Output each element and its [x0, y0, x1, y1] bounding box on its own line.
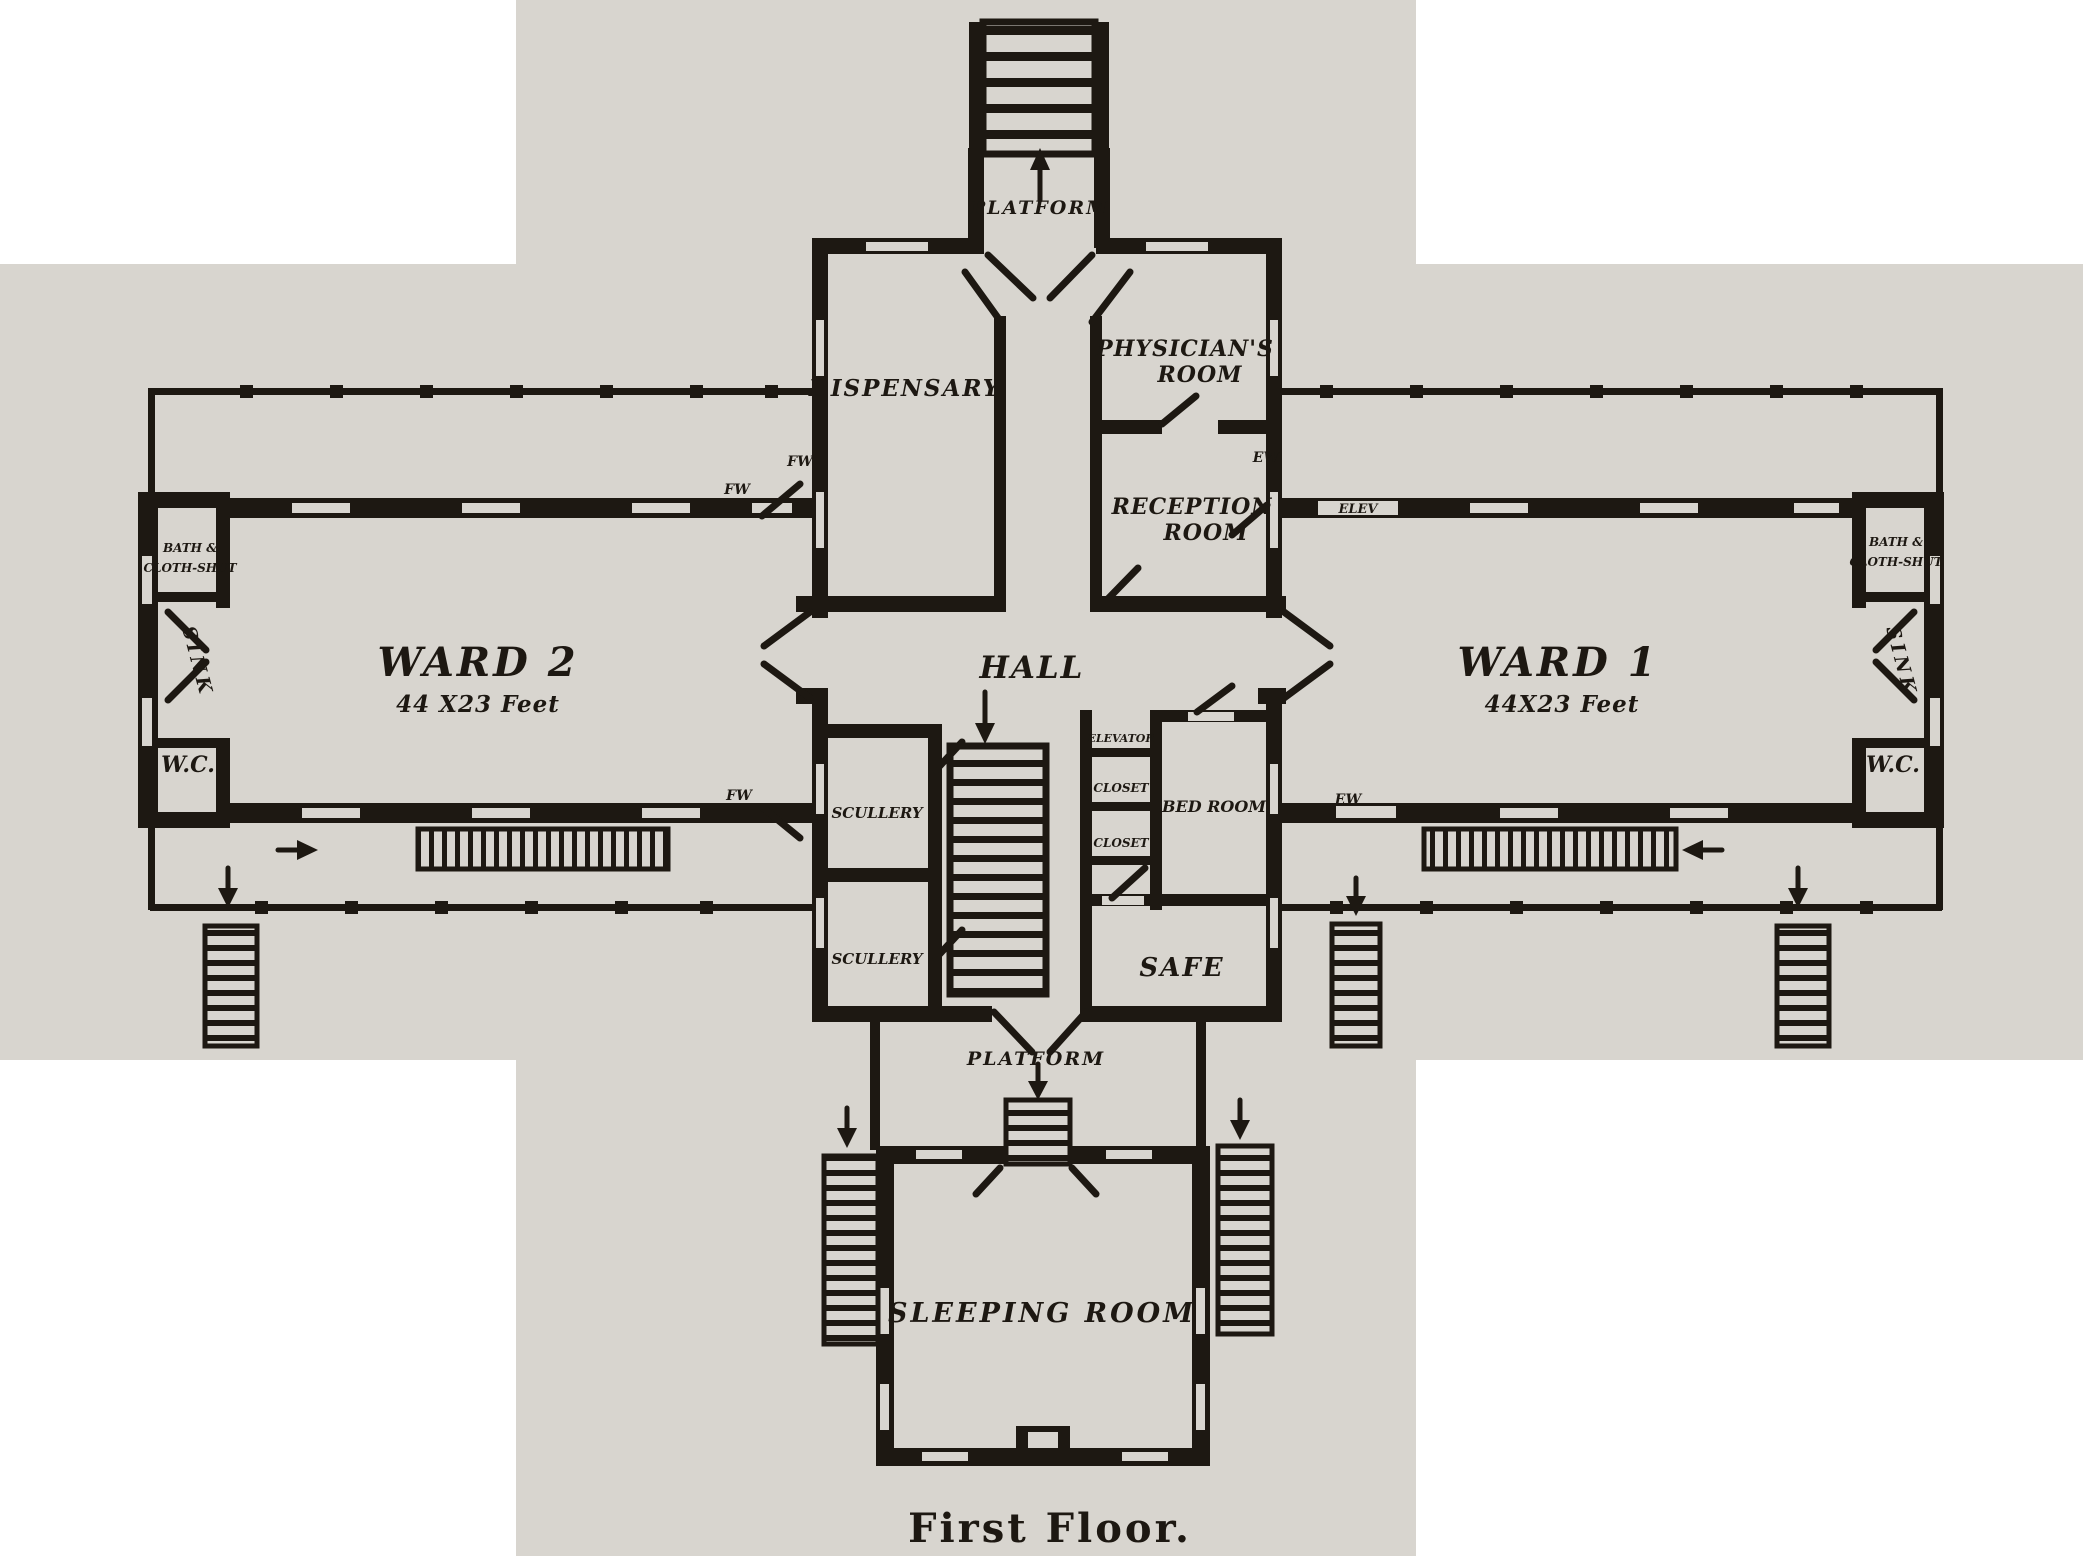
label-sleeping-room: SLEEPING ROOM: [888, 1298, 1196, 1329]
label-reception-2: ROOM: [1163, 520, 1249, 546]
scanned-page: PLATFORM DISPENSARY PHYSICIAN'S ROOM REC…: [0, 0, 2083, 1556]
label-bath-right-1: BATH &: [1868, 535, 1923, 549]
label-wc-left: W.C.: [161, 752, 215, 778]
staircase-bottom-platform: [1006, 1100, 1070, 1164]
annotation-elev: ELEV: [1337, 502, 1379, 517]
label-hall: HALL: [979, 650, 1085, 686]
label-safe: SAFE: [1139, 953, 1224, 983]
label-bath-right-2: CLOTH-SHUT: [1849, 555, 1943, 569]
label-scullery-lower: SCULLERY: [831, 950, 923, 968]
label-ward2-dims: 44 X23 Feet: [396, 691, 560, 718]
staircase-mid-right: [1332, 924, 1380, 1046]
label-bed-room: BED ROOM: [1161, 797, 1267, 816]
label-platform-top: PLATFORM: [970, 197, 1109, 219]
annotation-ew-a: EW: [1252, 450, 1281, 466]
annotation-fw-a: FW: [723, 482, 751, 498]
label-closet-b: CLOSET: [1093, 836, 1149, 850]
annotation-fw-b: FW: [786, 454, 814, 470]
label-ward2-name: WARD 2: [377, 639, 578, 686]
annotation-ew-b: EW: [1334, 792, 1363, 808]
label-platform-bottom: PLATFORM: [966, 1048, 1105, 1070]
label-closet-a: CLOSET: [1093, 781, 1149, 795]
staircase-far-left: [205, 926, 257, 1046]
label-ward1-name: WARD 1: [1457, 639, 1658, 686]
label-physicians-2: ROOM: [1157, 362, 1243, 388]
label-dispensary: DISPENSARY: [808, 375, 1002, 402]
label-scullery-upper: SCULLERY: [831, 804, 923, 822]
staircase-top-entrance: [983, 22, 1095, 154]
label-reception-1: RECEPTION: [1111, 494, 1273, 520]
label-ward1-dims: 44X23 Feet: [1485, 691, 1640, 718]
staircase-ward2-porch: [418, 829, 668, 869]
label-bath-left-2: CLOTH-SHUT: [143, 561, 237, 575]
staircase-central: [950, 746, 1046, 994]
label-bath-left-1: BATH &: [162, 541, 217, 555]
annotation-fw-c: FW: [725, 788, 753, 804]
staircase-sleeping-right: [1218, 1146, 1272, 1334]
caption-first-floor: First Floor.: [908, 1505, 1192, 1552]
label-physicians-1: PHYSICIAN'S: [1095, 336, 1274, 362]
staircase-sleeping-left: [824, 1156, 878, 1344]
label-wc-right: W.C.: [1866, 752, 1920, 778]
label-elevator: ELEVATOR: [1086, 732, 1154, 745]
staircase-far-right: [1777, 926, 1829, 1046]
floor-plan: PLATFORM DISPENSARY PHYSICIAN'S ROOM REC…: [0, 0, 2083, 1556]
staircase-ward1-porch: [1424, 829, 1676, 869]
